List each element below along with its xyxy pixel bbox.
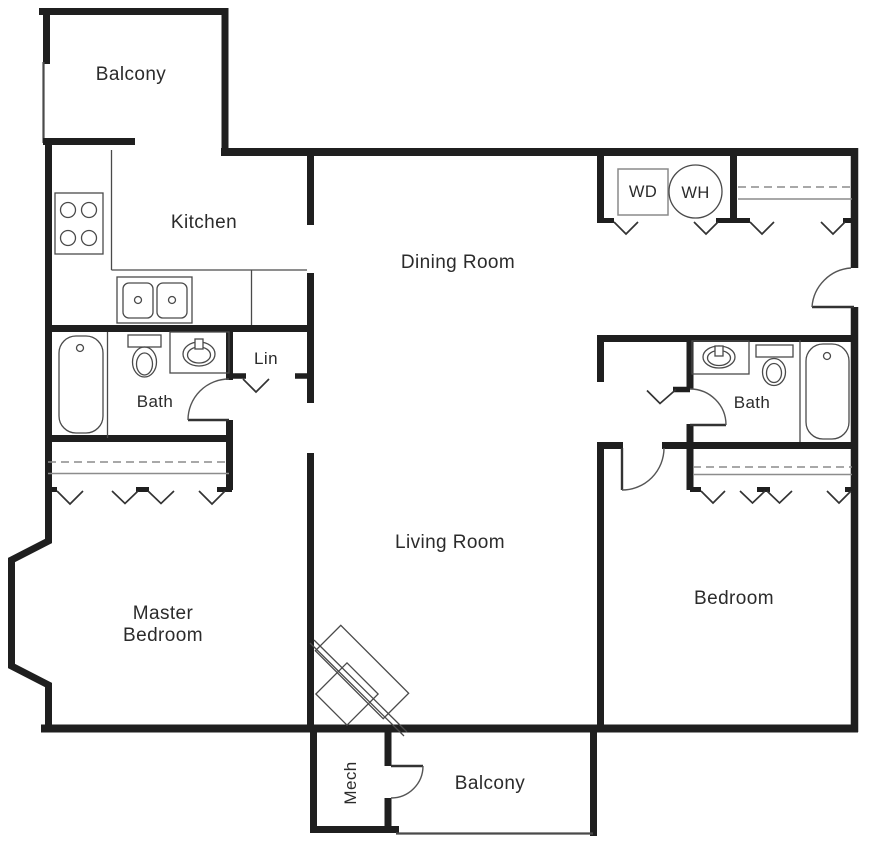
- bathtub-icon: [59, 336, 103, 433]
- dining-room-label: Dining Room: [401, 252, 515, 273]
- bifold-door-chevron-icon: [821, 222, 845, 234]
- bath-left-label: Bath: [137, 392, 174, 411]
- bath-right-fixtures: [692, 340, 849, 442]
- master-bedroom-label-line2: Bedroom: [123, 625, 203, 646]
- bifold-door-chevron-icon: [694, 222, 718, 234]
- toilet-icon: [128, 335, 161, 377]
- corner-fireplace-icon: [310, 625, 409, 736]
- floor-plan: WD WH Balcony Kitchen Dining Room Living…: [0, 0, 876, 844]
- vanity-sink-icon: [692, 341, 749, 374]
- bifold-door-chevron-icon: [57, 491, 83, 504]
- bedroom-label: Bedroom: [694, 588, 774, 609]
- washer-dryer-label: WD: [629, 183, 657, 201]
- west-wall-bay: [12, 138, 49, 732]
- linen-closet-label: Lin: [254, 349, 278, 368]
- bath-right-label: Bath: [734, 393, 771, 412]
- bifold-door-chevron-icon: [750, 222, 774, 234]
- door-swing-icon: [812, 268, 851, 307]
- balcony-bottom-label: Balcony: [455, 773, 525, 794]
- bifold-door-chevron-icon: [148, 491, 174, 504]
- door-swing-icon: [188, 379, 229, 420]
- door-swing-icon: [690, 389, 726, 425]
- door-swing-icon: [622, 448, 664, 490]
- bifold-door-chevron-icon: [701, 491, 725, 503]
- bifold-door-chevron-icon: [827, 491, 851, 503]
- mech-room-label: Mech: [341, 761, 360, 804]
- bath-left-fixtures: [59, 332, 229, 438]
- vanity-sink-icon: [170, 332, 229, 373]
- stove-icon: [55, 193, 103, 254]
- living-room-label: Living Room: [395, 532, 505, 553]
- toilet-icon: [756, 345, 793, 386]
- kitchen-double-sink-icon: [117, 277, 192, 323]
- bifold-door-chevron-icon: [614, 222, 638, 234]
- bathtub-icon: [806, 344, 849, 439]
- balcony-top-label: Balcony: [96, 64, 166, 85]
- kitchen-fixtures: [55, 150, 307, 325]
- utility-appliances: WD WH: [618, 165, 722, 218]
- door-swing-icon: [391, 766, 423, 798]
- kitchen-label: Kitchen: [171, 212, 237, 233]
- bifold-door-chevron-icon: [767, 491, 792, 503]
- bifold-door-chevron-icon: [243, 379, 269, 392]
- water-heater-label: WH: [681, 184, 709, 202]
- floor-plan-svg: WD WH Balcony Kitchen Dining Room Living…: [0, 0, 876, 844]
- bifold-door-chevron-icon: [199, 491, 225, 504]
- room-labels: Balcony Kitchen Dining Room Living Room …: [96, 64, 774, 805]
- bifold-door-chevron-icon: [647, 390, 676, 404]
- master-bedroom-label-line1: Master: [133, 603, 194, 624]
- bifold-door-chevron-icon: [740, 491, 765, 503]
- door-swings: [188, 268, 854, 798]
- bifold-door-chevron-icon: [112, 491, 138, 504]
